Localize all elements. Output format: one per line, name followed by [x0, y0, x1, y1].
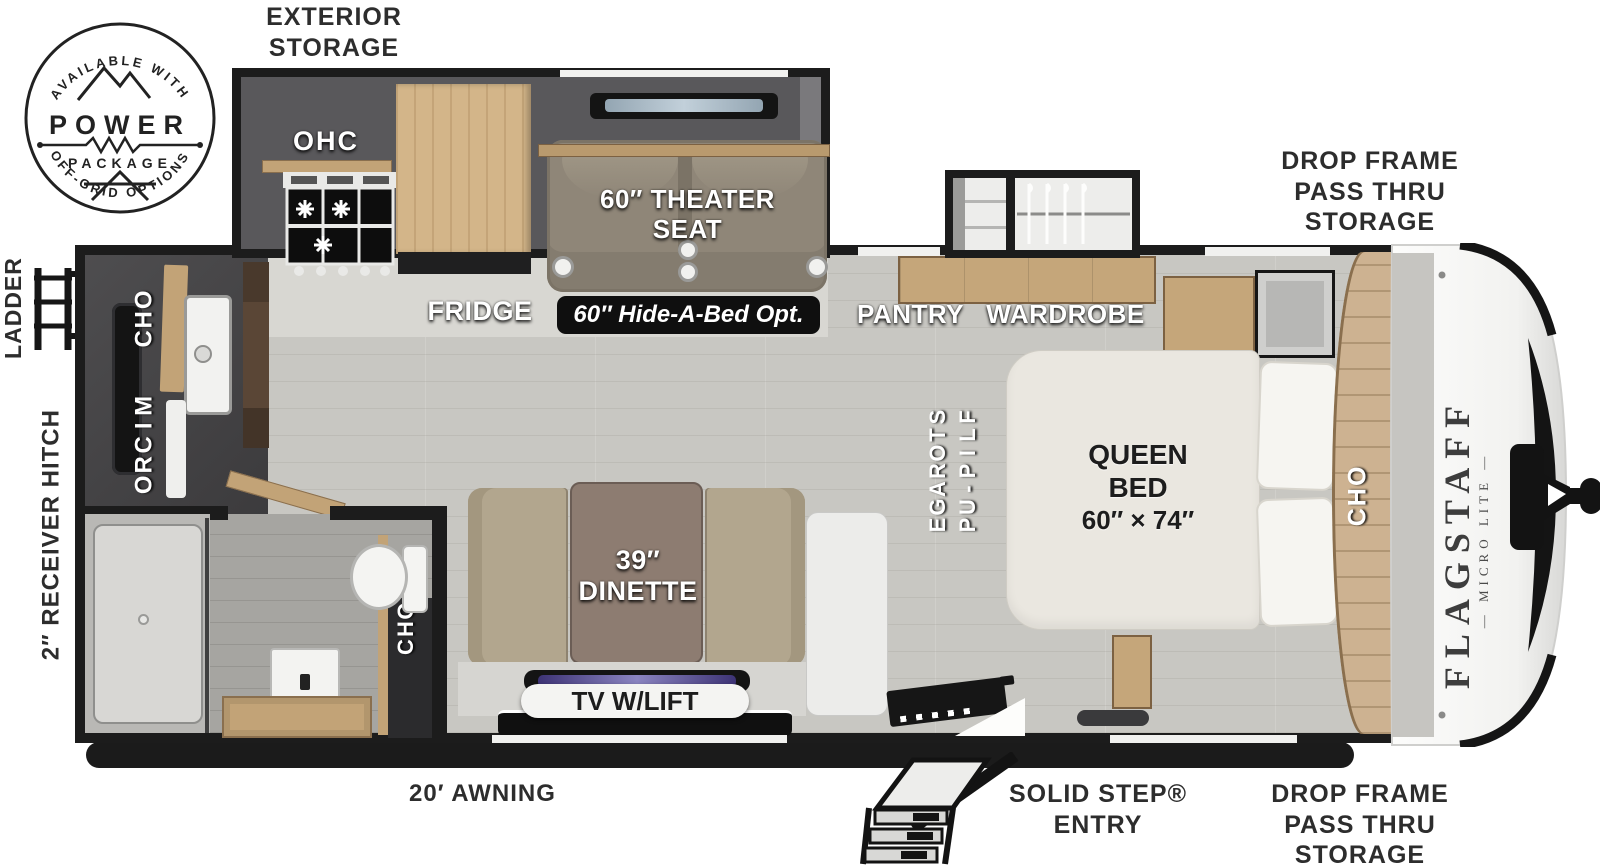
power-package-badge-icon: AVAILABLE WITH OFF-GRID OPTIONS POWER PA…	[20, 18, 220, 218]
floorplan-canvas: AVAILABLE WITH OFF-GRID OPTIONS POWER PA…	[0, 0, 1600, 868]
fridge-cabinet	[396, 84, 531, 254]
bathroom-wall-right	[432, 506, 447, 743]
pantry-shelf	[965, 226, 1006, 229]
dinette-bench-right	[705, 488, 805, 666]
pillow-bottom	[1256, 497, 1338, 628]
bedroom-dresser	[1255, 270, 1335, 358]
kitchen-ohc-label: OHC	[131, 290, 157, 349]
hitch-icon	[1508, 432, 1600, 562]
hangers-icon	[1015, 178, 1132, 250]
queen-line1: QUEEN	[1038, 438, 1238, 471]
theater-seat-rail	[538, 144, 830, 157]
window-bottom-1	[492, 735, 787, 743]
pass-thru-storage-floor	[1392, 253, 1434, 737]
queen-line3: 60″ × 74″	[1038, 504, 1238, 537]
cupholder-icon	[552, 256, 574, 278]
bed-ohc-label: OHC	[1344, 466, 1372, 528]
pillow-top	[1256, 361, 1338, 492]
entry-mat	[1077, 710, 1149, 726]
vanity-counter	[222, 696, 372, 738]
zigzag-line	[40, 138, 200, 152]
awning-tube	[86, 742, 1354, 768]
exterior-storage-line2: STORAGE	[244, 33, 424, 64]
slide-ohc-label: OHC	[286, 126, 366, 157]
vanity-faucet-icon	[300, 674, 310, 690]
queen-line2: BED	[1038, 471, 1238, 504]
window-bottom-2	[1110, 735, 1297, 743]
slide-tv-screen	[605, 99, 763, 112]
hide-a-bed-badge: 60″ Hide-A-Bed Opt.	[557, 296, 820, 334]
theater-line1: 60″ THEATER	[575, 185, 800, 215]
flip-up-word2: STORAGE	[926, 408, 950, 534]
pantry-shelf	[965, 200, 1006, 203]
micro-label: MICRO	[131, 396, 157, 494]
nightstand	[1112, 635, 1152, 709]
toilet-icon	[350, 544, 408, 610]
queen-bed-label: QUEEN BED 60″ × 74″	[1038, 438, 1238, 537]
theater-seat-label: 60″ THEATER SEAT	[575, 185, 800, 245]
cupholder-icon	[806, 256, 828, 278]
awning-label: 20′ AWNING	[390, 779, 575, 808]
shower-pan-icon	[93, 524, 203, 724]
kitchen-tall-cabinet	[243, 262, 269, 448]
exterior-storage-label: EXTERIOR STORAGE	[244, 2, 424, 63]
fridge-base	[398, 252, 531, 274]
badge-package-text: PACKAGE	[68, 155, 172, 171]
theater-line2: SEAT	[575, 215, 800, 245]
drop-frame-bottom-line2: PASS THRU	[1230, 810, 1490, 841]
dinette-size: 39″	[558, 545, 718, 576]
entry-steps-icon	[855, 752, 1035, 868]
shower-drain-icon	[138, 614, 149, 625]
popout-divider	[1006, 178, 1015, 250]
slide-top-window	[560, 70, 788, 77]
badge-power-text: POWER	[49, 110, 191, 140]
badge-arc-top-text: AVAILABLE WITH	[47, 53, 193, 102]
drop-frame-top-line2: PASS THRU	[1240, 177, 1500, 208]
flip-up-word1: FLIP-UP	[956, 408, 980, 534]
bedroom-wardrobe-cabinet	[1163, 276, 1255, 358]
drop-frame-bottom-line1: DROP FRAME	[1230, 779, 1490, 810]
drop-frame-top-label: DROP FRAME PASS THRU STORAGE	[1240, 146, 1500, 238]
drop-frame-top-line1: DROP FRAME	[1240, 146, 1500, 177]
tv-lift-badge: TV W/LIFT	[521, 684, 749, 718]
sink-drain-icon	[194, 345, 212, 363]
receiver-hitch-label: 2″ RECEIVER HITCH	[36, 395, 65, 675]
ladder-label: LADDER	[0, 242, 27, 374]
brand-name-label: FLAGSTAFF	[1436, 353, 1478, 733]
pantry-label: PANTRY	[843, 300, 978, 330]
fridge-label: FRIDGE	[418, 296, 542, 327]
entry-door-handle	[1000, 675, 1015, 686]
dinette-word: DINETTE	[558, 576, 718, 607]
exterior-storage-line1: EXTERIOR	[244, 2, 424, 33]
stove-icon	[283, 172, 397, 278]
bedroom-overhead-cabinets	[898, 256, 1156, 304]
drop-frame-bottom-line3: STORAGE	[1230, 840, 1490, 868]
wardrobe-label: WARDROBE	[983, 300, 1148, 330]
drop-frame-top-line3: STORAGE	[1240, 207, 1500, 238]
pantry-side-panel	[953, 178, 965, 250]
bathroom-wall-top-right	[330, 506, 447, 520]
brand-model-label: — MICRO LITE —	[1476, 435, 1492, 645]
shower-glass-door	[205, 518, 209, 733]
cupholder-icon	[678, 262, 698, 282]
window-top-1	[858, 247, 940, 256]
flip-up-storage-label: STORAGE FLIP-UP	[926, 408, 980, 534]
kitchen-counter-mat	[166, 400, 186, 498]
window-top-2	[1205, 247, 1330, 256]
galley-counter	[806, 512, 888, 716]
drop-frame-bottom-label: DROP FRAME PASS THRU STORAGE	[1230, 779, 1490, 868]
dinette-label: 39″ DINETTE	[558, 545, 718, 607]
dinette-bench-left	[468, 488, 568, 666]
